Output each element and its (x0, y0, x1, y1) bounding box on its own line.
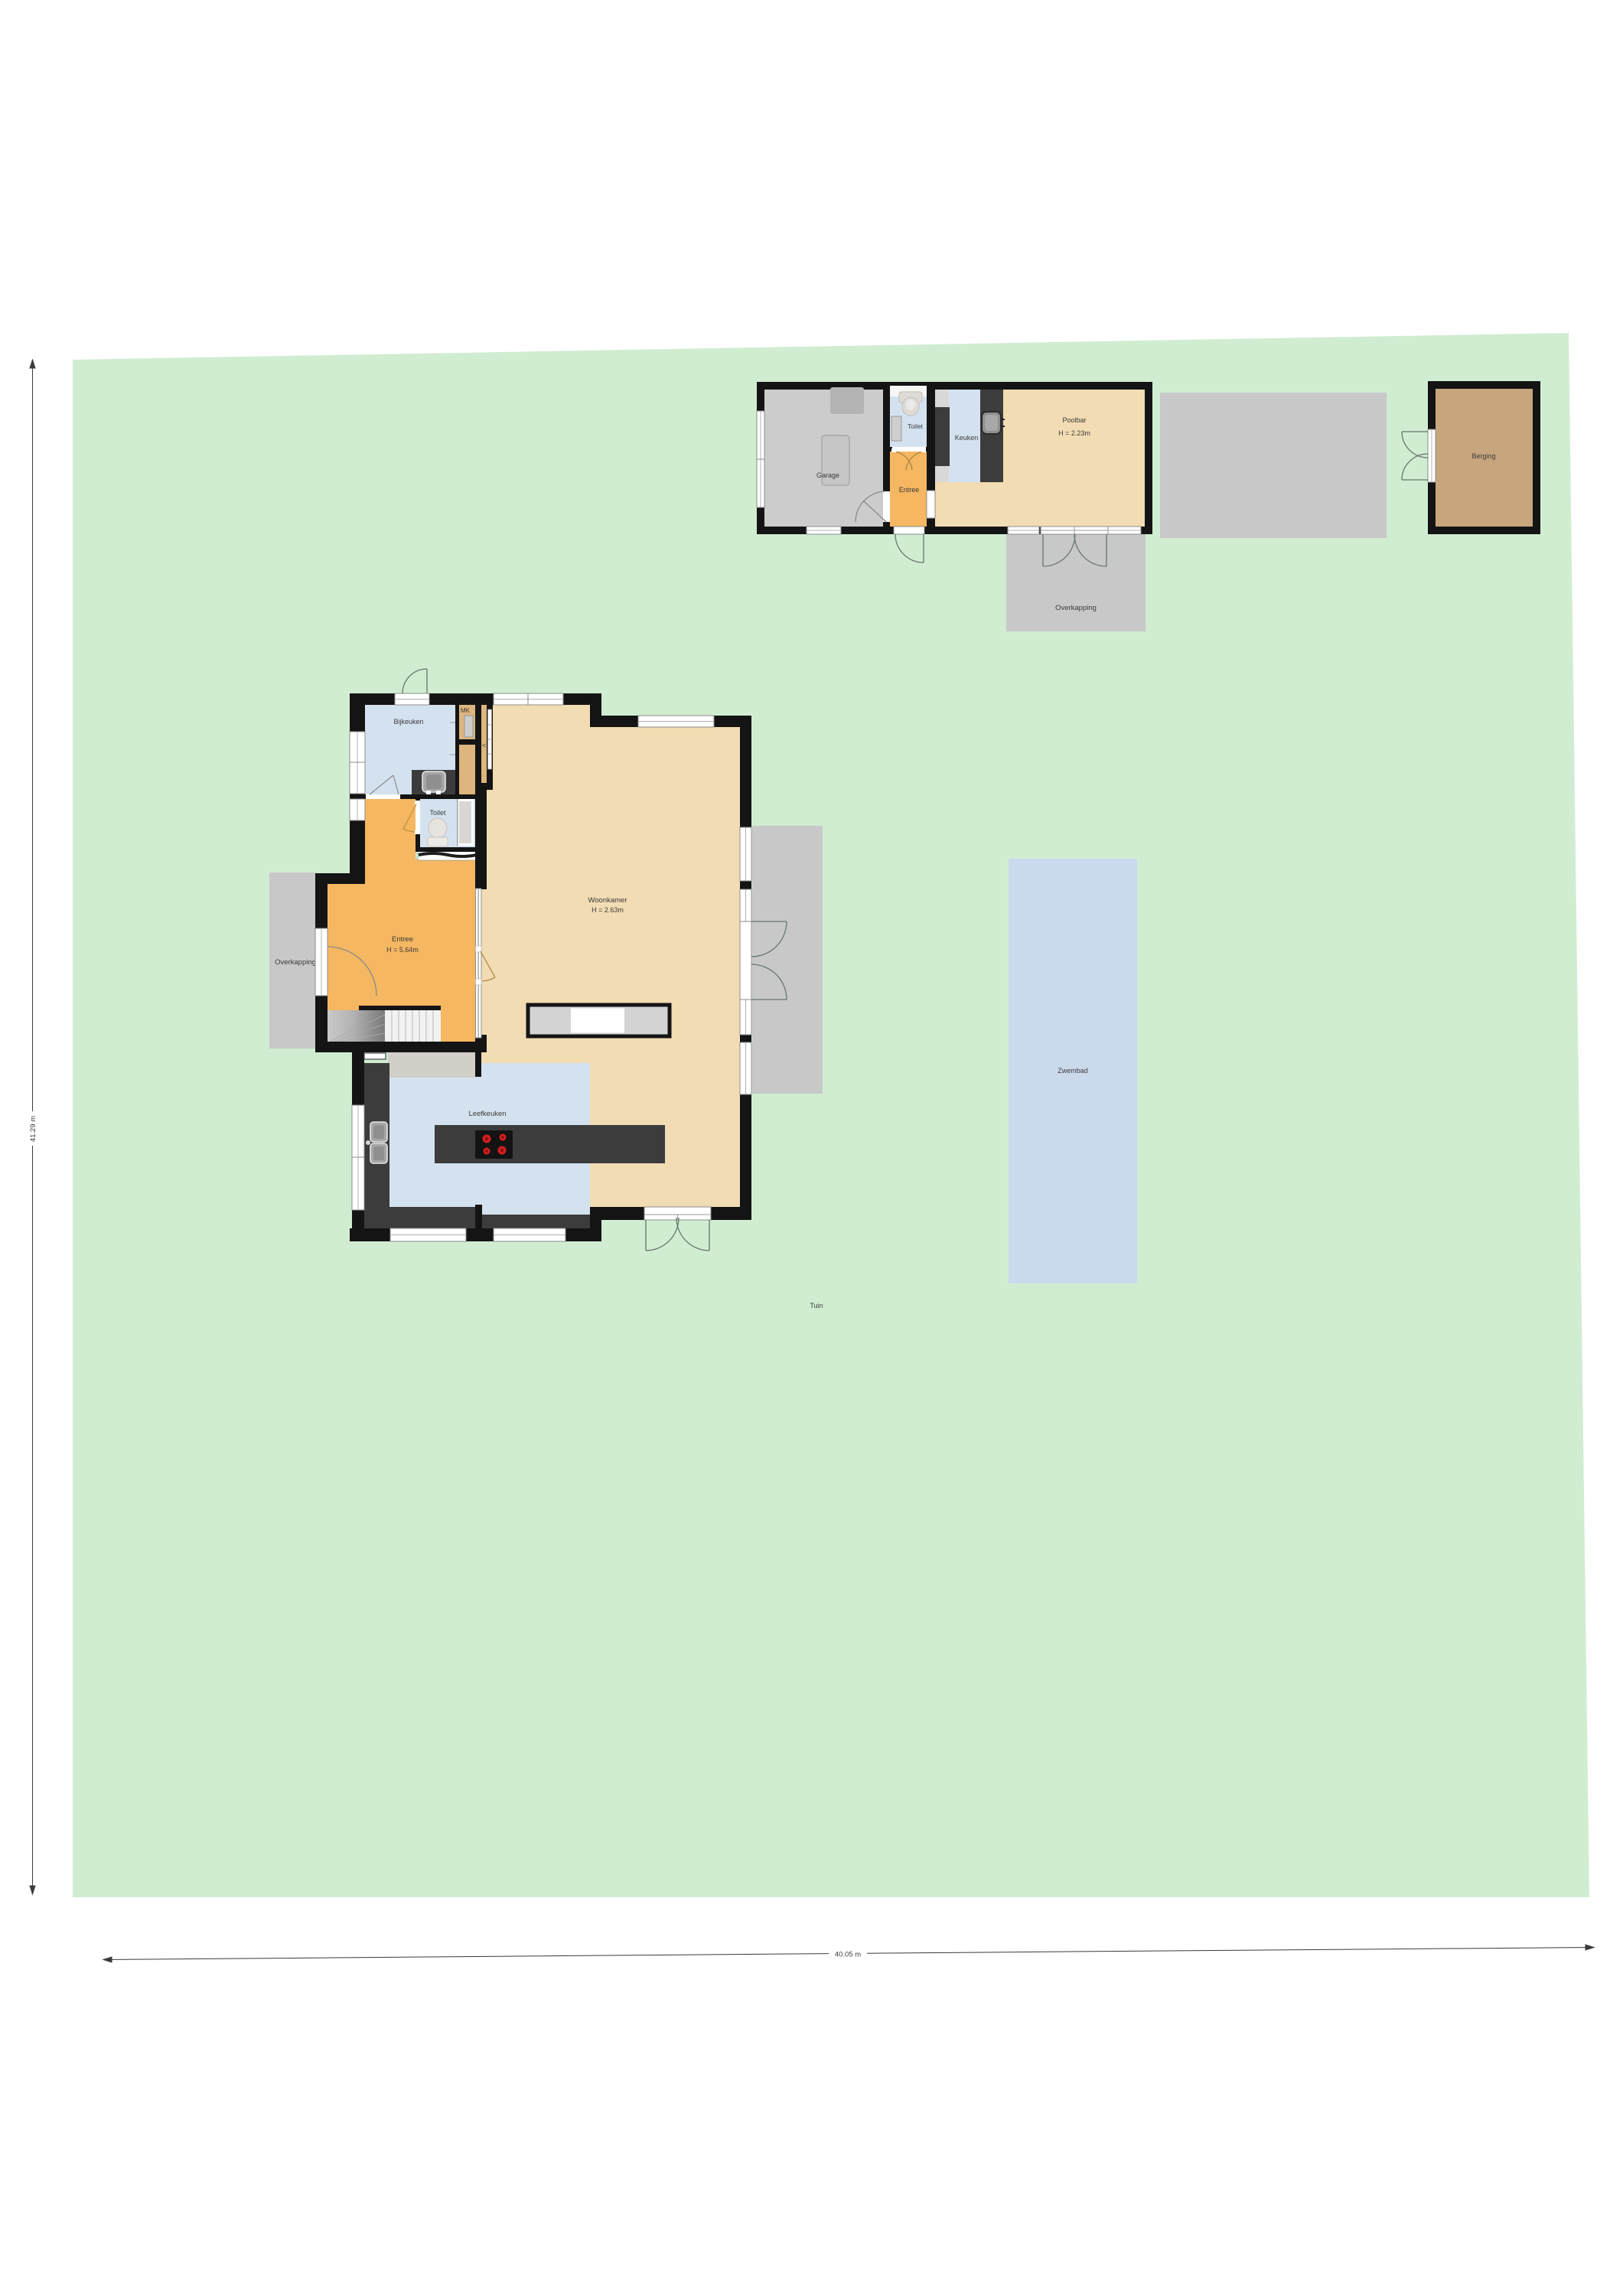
svg-text:Overkapping: Overkapping (275, 958, 316, 967)
svg-text:MK: MK (461, 707, 471, 714)
svg-text:Overkapping: Overkapping (1055, 604, 1097, 612)
svg-text:H = 2.23m: H = 2.23m (1058, 429, 1090, 437)
svg-text:Leefkeuken: Leefkeuken (468, 1110, 506, 1118)
svg-text:Tuin: Tuin (810, 1302, 823, 1309)
svg-text:Toilet: Toilet (429, 809, 446, 817)
svg-text:Berging: Berging (1471, 452, 1495, 460)
svg-text:Keuken: Keuken (955, 434, 979, 442)
svg-text:H = 5.64m: H = 5.64m (386, 946, 419, 954)
svg-text:Bijkeuken: Bijkeuken (393, 718, 423, 726)
svg-text:Entree: Entree (392, 935, 413, 944)
svg-text:<: < (482, 742, 486, 749)
svg-text:Poolbar: Poolbar (1062, 416, 1086, 424)
svg-text:Entree: Entree (899, 486, 920, 494)
svg-text:41.29 m: 41.29 m (29, 1116, 37, 1142)
svg-text:40.05 m: 40.05 m (835, 1951, 861, 1959)
svg-text:Garage: Garage (816, 471, 839, 479)
svg-text:Woonkamer: Woonkamer (588, 896, 627, 905)
svg-text:Toilet: Toilet (908, 422, 923, 430)
svg-text:H = 2.63m: H = 2.63m (592, 906, 624, 914)
svg-text:Zwembad: Zwembad (1058, 1067, 1088, 1075)
